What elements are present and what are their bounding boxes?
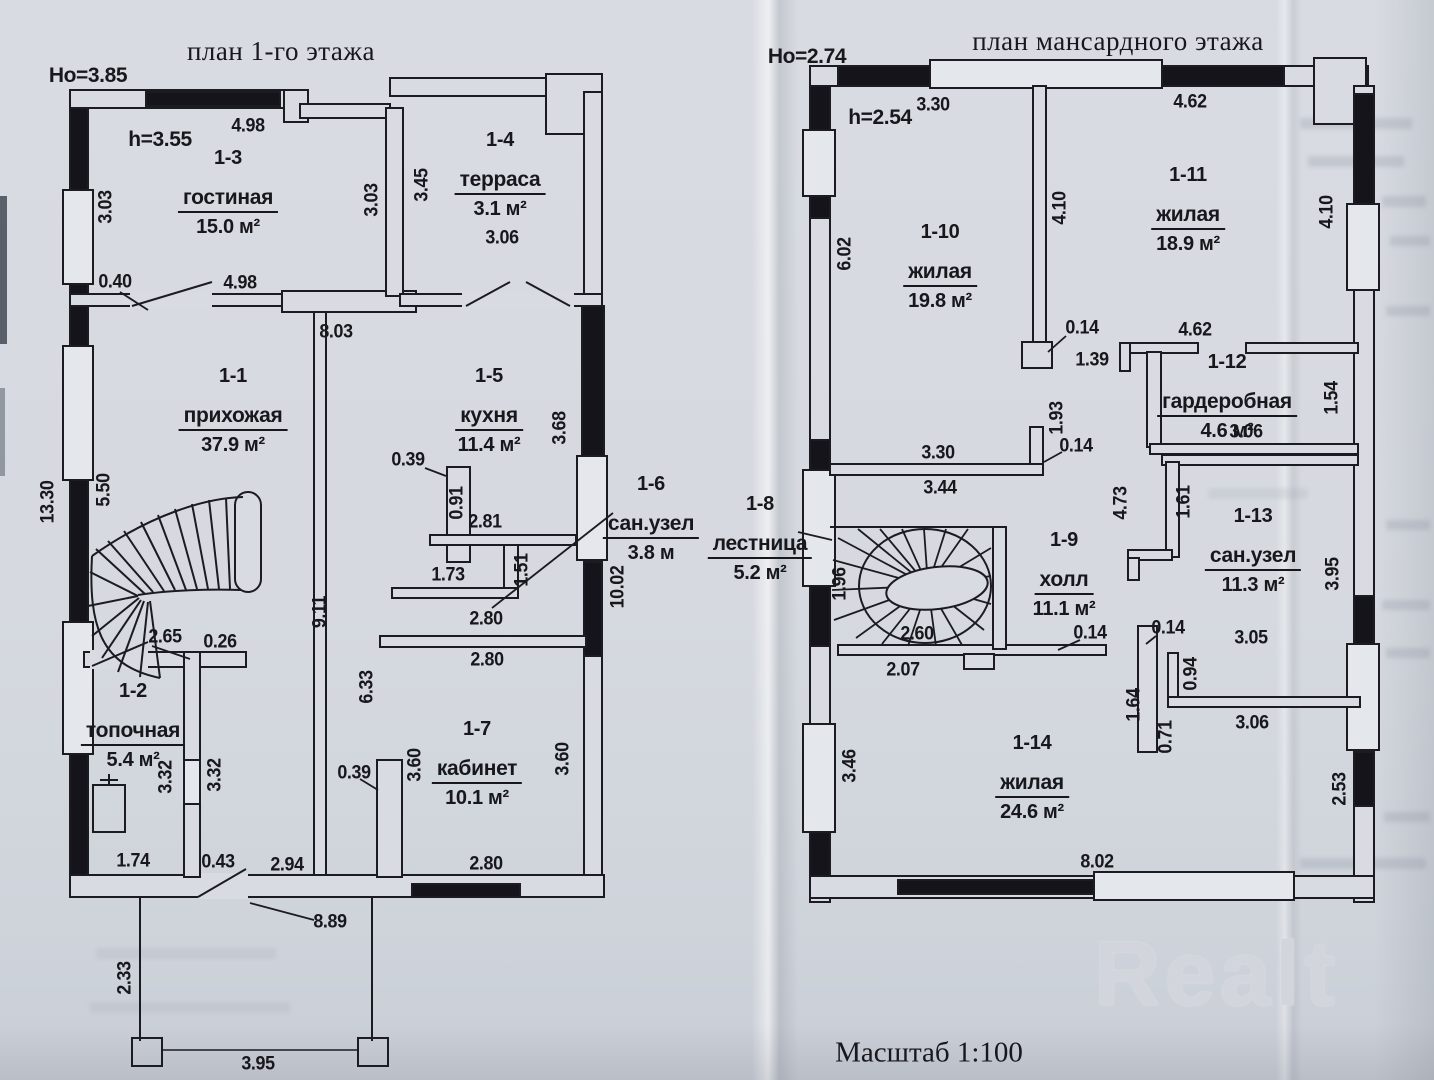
room-id: 1-14 [995,733,1069,753]
room-name: лестница [708,533,812,559]
dim-label: 3.06 [1229,423,1262,442]
room-id: 1-10 [903,222,977,242]
room-label-zhilaya-110: 1-10 жилая 19.8 м² [903,222,977,311]
room-label-kuhnya: 1-5 кухня 11.4 м² [455,366,523,455]
room-id: 1-2 [81,681,185,701]
room-label-zhilaya-111: 1-11 жилая 18.9 м² [1151,165,1225,254]
room-id: 1-12 [1157,352,1297,372]
dim-label: 2.80 [469,855,502,874]
scale-label: Масштаб 1:100 [835,1037,1023,1070]
room-id: 1-13 [1205,506,1301,526]
room-area: 10.1 м² [432,788,522,808]
room-label-gostinaya: 1-3 гостиная 15.0 м² [178,148,278,237]
room-name: жилая [995,772,1069,798]
dim-label: 9.11 [311,596,330,628]
room-id: 1-11 [1151,165,1225,185]
dim-label: 1.61 [1175,485,1194,518]
dim-label: 4.10 [1318,195,1337,228]
dim-label: 1.74 [116,852,149,871]
room-id: 1-7 [432,719,522,739]
dim-label: 1.39 [1075,351,1108,370]
room-name: жилая [1151,204,1225,230]
left-plan-title: план 1-го этажа [187,36,375,67]
dim-label: 0.14 [1059,437,1092,456]
dim-label: 3.32 [206,758,225,791]
dim-label: 0.91 [448,486,467,519]
dim-label: 1.93 [1048,401,1067,434]
room-label-terrasa: 1-4 терраса 3.1 м² [455,130,546,219]
room-area: 11.3 м² [1205,575,1301,595]
room-name: прихожая [179,405,288,431]
dim-label: 8.03 [319,323,352,342]
dim-label: 3.03 [97,190,116,223]
dim-label: 3.68 [551,411,570,444]
room-label-sanuzel-1: 1-6 сан.узел 3.8 м [603,474,699,563]
room-name: терраса [455,169,546,195]
dim-label: 0.14 [1073,624,1106,643]
left-plan-outer-height: Но=3.85 [49,64,127,88]
dim-label: 0.14 [1151,619,1184,638]
dim-label: 0.40 [98,273,131,292]
room-area: 24.6 м² [995,802,1069,822]
dim-label: 1.96 [831,567,850,600]
room-id: 1-4 [455,130,546,150]
dim-label: 6.33 [358,670,377,703]
dim-label: 3.06 [1235,714,1268,733]
room-id: 1-5 [455,366,523,386]
dim-label: 10.02 [609,566,628,609]
room-name: кухня [455,405,523,431]
dim-label: 2.94 [270,856,303,875]
dim-label: 4.98 [223,274,256,293]
room-area: 4.6 м² [1157,421,1297,441]
dim-label: 2.07 [886,661,919,680]
dim-label: 1.51 [513,553,532,586]
dim-label: 3.95 [241,1055,274,1074]
room-label-holl: 1-9 холл 11.1 м² [1033,530,1096,619]
dim-label: 4.62 [1178,321,1211,340]
dim-label: 3.46 [841,749,860,782]
room-label-sanuzel-2: 1-13 сан.узел 11.3 м² [1205,506,1301,595]
dim-label: 1.54 [1323,381,1342,414]
dim-label: 5.50 [95,473,114,506]
room-label-garderobnaya: 1-12 гардеробная 4.6 м² [1157,352,1297,441]
dim-label: 2.33 [116,961,135,994]
dim-label: 13.30 [39,481,58,524]
room-label-prihozhaya: 1-1 прихожая 37.9 м² [179,366,288,455]
room-name: сан.узел [1205,545,1301,571]
room-area: 15.0 м² [178,217,278,237]
dim-label: 4.10 [1051,191,1070,224]
dim-label: 4.62 [1173,93,1206,112]
dim-label: 3.05 [1234,629,1267,648]
room-area: 18.9 м² [1151,234,1225,254]
room-label-topochnaya: 1-2 топочная 5.4 м² [81,681,185,770]
dim-label: 0.71 [1157,720,1176,753]
right-plan-outer-height: Но=2.74 [768,45,846,69]
room-name: жилая [903,261,977,287]
room-area: 19.8 м² [903,291,977,311]
dim-label: 3.30 [921,444,954,463]
room-id: 1-6 [603,474,699,494]
dim-label: 0.39 [337,764,370,783]
room-label-kabinet: 1-7 кабинет 10.1 м² [432,719,522,808]
dim-label: 2.81 [468,513,501,532]
room-id: 1-3 [178,148,278,168]
room-id: 1-1 [179,366,288,386]
dim-label: 3.45 [413,168,432,201]
dim-label: 4.98 [231,117,264,136]
room-name: топочная [81,720,185,746]
dim-label: 2.53 [1331,772,1350,805]
dim-label: 3.32 [157,760,176,793]
dim-label: 3.60 [406,748,425,781]
realt-watermark-logo: Realt [1094,928,1339,1020]
dim-label: 3.44 [923,479,956,498]
dim-label: 0.39 [391,451,424,470]
dim-label: 0.94 [1182,657,1201,690]
dim-label: 3.06 [485,229,518,248]
room-name: гардеробная [1157,391,1297,417]
dim-label: 1.73 [431,566,464,585]
room-area: 3.1 м² [455,199,546,219]
dim-label: 6.02 [836,237,855,270]
dim-label: 0.26 [203,633,236,652]
dimension-leaders [798,336,1156,650]
dim-label: 4.73 [1112,486,1131,519]
dim-label: 8.89 [313,913,346,932]
room-area: 3.8 м [603,543,699,563]
dim-label: 2.80 [469,610,502,629]
right-plan-ceiling-height: h=2.54 [848,106,912,130]
dim-label: 2.65 [148,628,181,647]
room-name: холл [1035,569,1094,595]
room-area: 11.1 м² [1033,599,1096,619]
dim-label: 2.80 [470,651,503,670]
dim-label: 3.03 [363,183,382,216]
right-plan-walls [798,58,1379,902]
dim-label: 3.30 [916,96,949,115]
room-area: 11.4 м² [455,435,523,455]
floorplan-scan-page: план 1-го этажа план мансардного этажа Н… [0,0,1434,1080]
dim-label: 0.14 [1065,319,1098,338]
room-name: гостиная [178,187,278,213]
dim-label: 2.60 [900,625,933,644]
dim-label: 3.95 [1324,557,1343,590]
room-id: 1-8 [708,494,812,514]
dim-label: 0.43 [201,853,234,872]
dim-label: 1.64 [1125,688,1144,721]
dim-label: 8.02 [1080,853,1113,872]
room-id: 1-9 [1033,530,1096,550]
room-name: сан.узел [603,513,699,539]
room-label-lestnitsa: 1-8 лестница 5.2 м² [708,494,812,583]
room-name: кабинет [432,758,522,784]
room-label-zhilaya-114: 1-14 жилая 24.6 м² [995,733,1069,822]
dim-label: 3.60 [554,742,573,775]
right-plan-title: план мансардного этажа [972,26,1264,57]
room-area: 37.9 м² [179,435,288,455]
room-area: 5.2 м² [708,563,812,583]
